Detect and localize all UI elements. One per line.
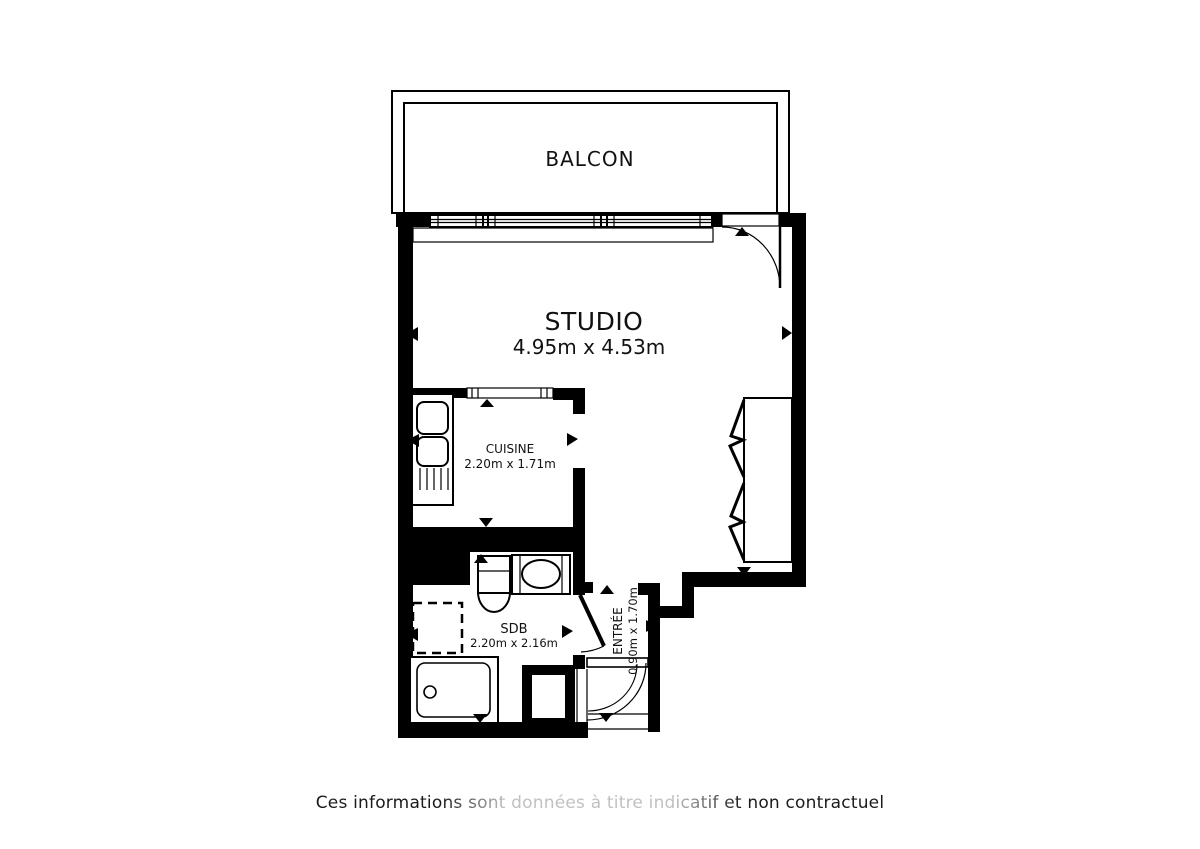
studio-label: STUDIO (545, 307, 644, 336)
wall-kitchen-right-lower (573, 468, 585, 527)
dimension-arrow-studio-right (782, 326, 792, 340)
wardrobe-icon (730, 398, 792, 562)
dimension-arrow-entrance-bottom (599, 713, 613, 722)
balcony-label: BALCON (545, 147, 634, 171)
shower-tray-icon (410, 657, 498, 723)
door-lintel (722, 214, 779, 226)
entrance-label: ENTRÉE (610, 607, 625, 654)
door-swing-icon-bathroom (580, 595, 604, 652)
disclaimer-text: Ces informations sont données à titre in… (0, 793, 1200, 813)
entrance-dimensions: 0.90m x 1.70m (626, 587, 640, 675)
bathroom-dimensions: 2.20m x 2.16m (470, 636, 558, 650)
wall-entrance-right (648, 583, 660, 732)
kitchen-sink-icon (412, 394, 453, 505)
bathroom-label: SDB (500, 622, 527, 637)
wall-bottom (398, 722, 588, 738)
wall-kitchen-bottom (413, 527, 585, 552)
dimension-arrow-kitchen-top (480, 399, 494, 407)
floor-plan-page: BALCON STUDIO 4.95m x 4.53m CUISINE 2.20… (0, 0, 1200, 849)
kitchen-pass-through-icon (467, 388, 553, 398)
toilet-icon (478, 556, 510, 612)
window-icon (413, 215, 713, 242)
wall-bathroom-left-chunk (405, 552, 470, 585)
dimension-arrow-kitchen-right (567, 433, 578, 446)
wall-top-mid-block (712, 213, 722, 227)
dimension-arrow-kitchen-bottom (479, 518, 493, 527)
technical-shaft-inner (532, 675, 565, 718)
wall-bathroom-right-top (573, 552, 585, 595)
door-swing-icon-studio (722, 214, 780, 288)
floor-plan-svg: BALCON STUDIO 4.95m x 4.53m CUISINE 2.20… (0, 0, 1200, 849)
wall-right (792, 213, 806, 587)
appliance-slot-dashed (413, 603, 462, 653)
window-sill-line (413, 228, 713, 242)
wall-entrance-cap (638, 583, 660, 595)
washbasin-icon (512, 555, 570, 594)
dimension-arrow-bathroom-right (562, 625, 573, 638)
wall-top-hinge-block (779, 213, 793, 227)
kitchen-dimensions: 2.20m x 1.71m (464, 457, 556, 471)
wall-top-left-corner (396, 213, 430, 227)
kitchen-label: CUISINE (486, 442, 534, 456)
bathroom-door-hinge-block (584, 582, 593, 593)
dimension-arrow-entrance-top (600, 585, 614, 594)
studio-dimensions: 4.95m x 4.53m (513, 335, 666, 359)
wall-kitchen-right-upper (573, 398, 585, 414)
